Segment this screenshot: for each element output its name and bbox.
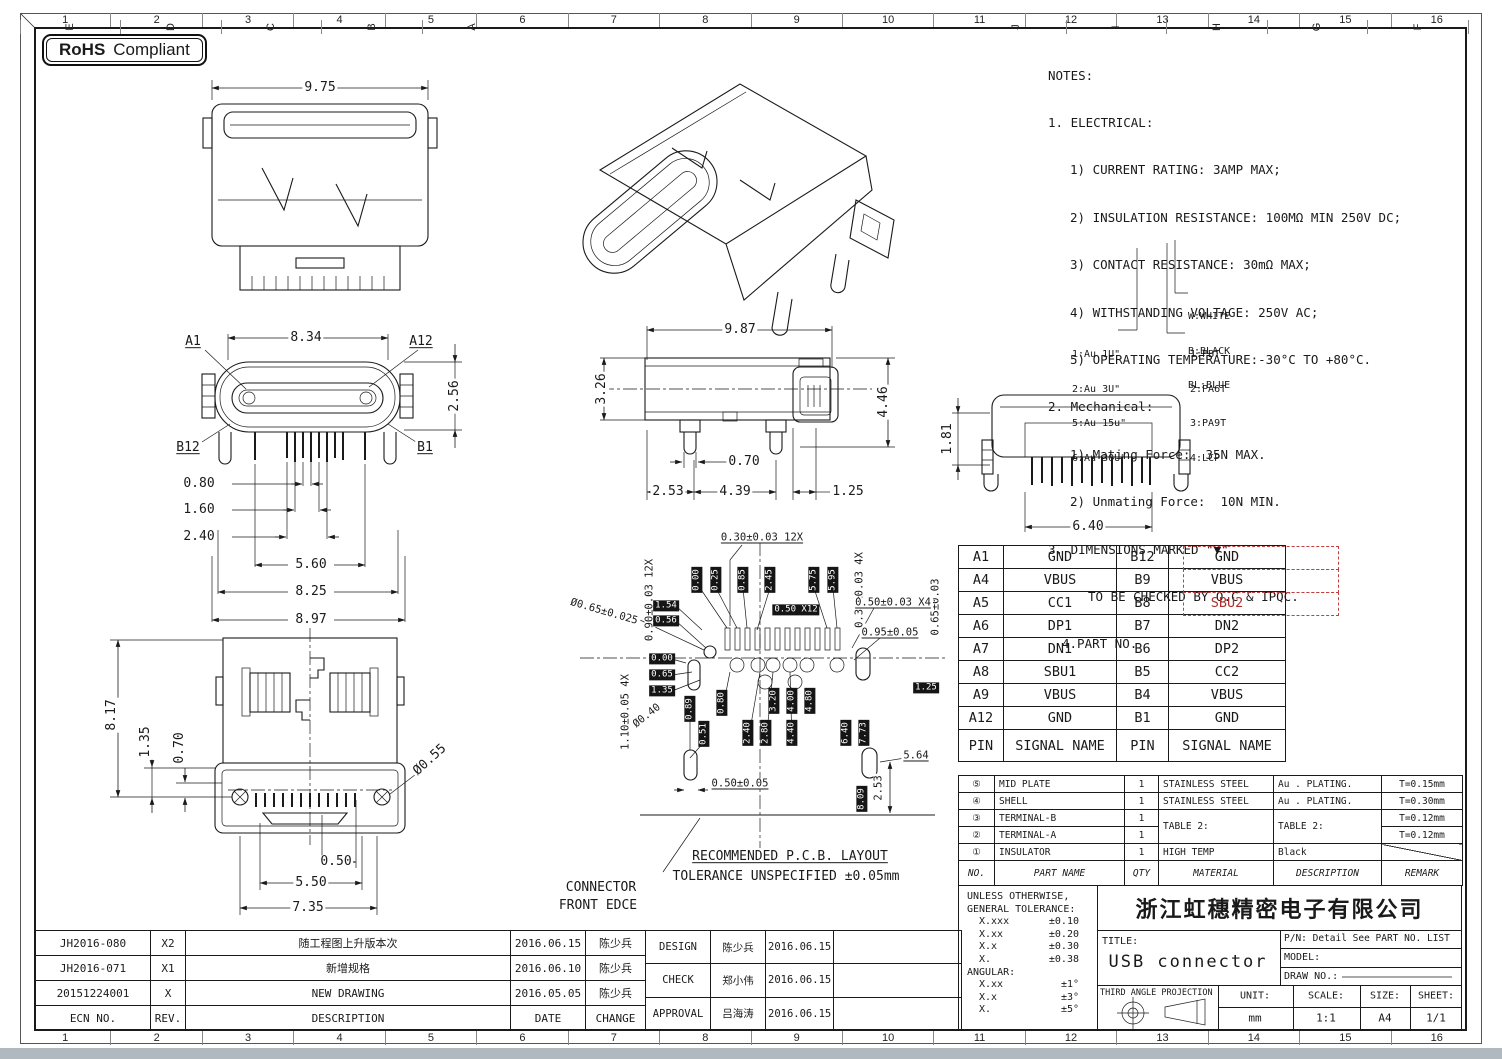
grid-col: 9 bbox=[752, 13, 843, 27]
pcb-basic-dim: 2.40 bbox=[742, 720, 753, 746]
front-view bbox=[202, 334, 462, 622]
grid-row: A bbox=[423, 20, 523, 34]
projection-label: THIRD ANGLE PROJECTION bbox=[1100, 988, 1213, 998]
signal-cell: VBUS bbox=[1004, 569, 1117, 592]
model-label: MODEL: bbox=[1284, 952, 1320, 963]
pcb-basic-dim: 4.00 bbox=[786, 688, 797, 714]
note-line: 2) Unmating Force: 10N MIN. bbox=[1070, 494, 1401, 510]
pcb-basic-dim: 5.75 bbox=[808, 567, 819, 593]
pcb-basic-dim: 0.56 bbox=[653, 615, 679, 626]
grid-row: H bbox=[1167, 20, 1268, 34]
titleblock-line bbox=[1097, 985, 1462, 986]
dim-front-p3: 2.40 bbox=[181, 530, 216, 544]
signal-cell: GND bbox=[1004, 707, 1117, 730]
dim-bottom-height: 8.17 bbox=[105, 697, 119, 732]
dim-bottom-p2: 5.50 bbox=[293, 876, 328, 890]
titleblock-line bbox=[958, 1029, 1462, 1030]
dim-front-p1: 0.80 bbox=[181, 477, 216, 491]
grid-col: 10 bbox=[843, 13, 934, 27]
pin-header: PIN bbox=[959, 730, 1004, 762]
approval-name: 郑小伟 bbox=[711, 964, 766, 997]
pin-cell: A4 bbox=[959, 569, 1004, 592]
titleblock-line bbox=[1360, 985, 1361, 1030]
pin-cell: B9 bbox=[1117, 569, 1169, 592]
part-name: MID PLATE bbox=[995, 776, 1125, 793]
pcb-basic-dim: 1.54 bbox=[653, 600, 679, 611]
titleblock-line bbox=[1293, 985, 1294, 1030]
rev-header-ecn: ECN NO. bbox=[36, 1006, 151, 1031]
signal-cell: DN1 bbox=[1004, 638, 1117, 661]
dim-bottom-d2: 0.70 bbox=[173, 730, 187, 765]
tol-code: X.x bbox=[979, 992, 997, 1005]
parts-table: ⑤MID PLATE1STAINLESS STEELAu . PLATING.T… bbox=[958, 775, 1463, 886]
rev-header-date: DATE bbox=[511, 1006, 586, 1031]
note-line: 4) WITHSTANDING VOLTAGE: 250V AC; bbox=[1070, 305, 1401, 321]
grid-row: D bbox=[121, 20, 222, 34]
part-desc: Au . PLATING. bbox=[1274, 793, 1382, 810]
part-qty: 1 bbox=[1125, 844, 1159, 861]
grid-letters-left: JIHGFEDCBA bbox=[0, 20, 522, 34]
unit-value: mm bbox=[1248, 1012, 1261, 1025]
rev-header-rev: REV. bbox=[151, 1006, 186, 1031]
scale-value: 1:1 bbox=[1316, 1012, 1336, 1025]
pcb-basic-dim: 0.51 bbox=[698, 721, 709, 747]
company-name: 浙江虹穗精密电子有限公司 bbox=[1097, 885, 1462, 930]
part-remark: T=0.15mm bbox=[1382, 776, 1463, 793]
dim-front-p4: 5.60 bbox=[293, 558, 328, 572]
tol-code: X.xx bbox=[979, 979, 1003, 992]
pcb-dim-r1: 0.50±0.03 X4 bbox=[853, 597, 933, 608]
signal-cell: DP2 bbox=[1169, 638, 1286, 661]
grid-col: 10 bbox=[843, 1031, 934, 1045]
grid-row: G bbox=[1268, 20, 1369, 34]
rev-rev: X bbox=[151, 981, 186, 1006]
approval-role: DESIGN bbox=[646, 931, 711, 964]
pin-cell: B12 bbox=[1117, 546, 1169, 569]
rev-desc: NEW DRAWING bbox=[186, 981, 511, 1006]
dim-front-p6: 8.97 bbox=[293, 613, 328, 627]
grid-col: 13 bbox=[1117, 1031, 1208, 1045]
part-name: TERMINAL-B bbox=[995, 810, 1125, 827]
grid-row: I bbox=[1067, 20, 1168, 34]
tol-val: ±5° bbox=[1061, 1004, 1079, 1017]
dim-side-h2: 4.46 bbox=[877, 384, 891, 419]
rohs-text: Compliant bbox=[113, 40, 190, 59]
pcb-basic-dim: 1.35 bbox=[649, 685, 675, 696]
pcb-basic-dim: 0.80 bbox=[716, 690, 727, 716]
part-material: HIGH TEMP bbox=[1159, 844, 1274, 861]
unit-label: UNIT: bbox=[1240, 991, 1270, 1002]
titleblock-line bbox=[1218, 985, 1219, 1030]
size-label: SIZE: bbox=[1370, 991, 1400, 1002]
grid-row: F bbox=[0, 20, 21, 34]
dim-side-d1: 0.70 bbox=[726, 455, 761, 469]
dim-side-width: 9.87 bbox=[722, 323, 757, 337]
part-material: STAINLESS STEEL bbox=[1159, 776, 1274, 793]
pcb-basic-dim: 7.73 bbox=[858, 720, 869, 746]
tolerance-line: GENERAL TOLERANCE: bbox=[967, 904, 1097, 917]
legend-line: 1:Au 1U" bbox=[1072, 349, 1126, 361]
rev-desc: 随工程图上升版本次 bbox=[186, 931, 511, 956]
dim-top-width: 9.75 bbox=[302, 81, 337, 95]
signal-cell: VBUS bbox=[1004, 684, 1117, 707]
legend-line: W:WHITE bbox=[1188, 311, 1230, 323]
size-value: A4 bbox=[1378, 1012, 1391, 1025]
grid-col: 14 bbox=[1209, 1031, 1300, 1045]
highlight-b9-vbus bbox=[1183, 569, 1339, 593]
pin-cell: B1 bbox=[1117, 707, 1169, 730]
part-name: SHELL bbox=[995, 793, 1125, 810]
part-remark: T=0.12mm bbox=[1382, 810, 1463, 827]
parts-header-material: MATERIAL bbox=[1159, 861, 1274, 886]
part-desc: Black bbox=[1274, 844, 1382, 861]
approval-date: 2016.06.15 bbox=[766, 997, 834, 1030]
parts-header-no: NO. bbox=[959, 861, 995, 886]
note-line: 1) CURRENT RATING: 3AMP MAX; bbox=[1070, 162, 1401, 178]
part-qty: 1 bbox=[1125, 793, 1159, 810]
dim-side-d2: 2.53 bbox=[650, 485, 685, 499]
pcb-basic-dim: 5.95 bbox=[827, 567, 838, 593]
signal-cell: CC1 bbox=[1004, 592, 1117, 615]
bottom-view bbox=[110, 628, 424, 915]
dim-front-p2: 1.60 bbox=[181, 503, 216, 517]
rev-change: 陈少兵 bbox=[586, 931, 646, 956]
part-qty: 1 bbox=[1125, 810, 1159, 827]
rev-date: 2016.06.15 bbox=[511, 931, 586, 956]
pcb-basic-dim: 2.80 bbox=[760, 720, 771, 746]
empty-cell bbox=[834, 964, 962, 997]
pin-cell: A5 bbox=[959, 592, 1004, 615]
rev-change: 陈少兵 bbox=[586, 956, 646, 981]
pcb-dim-top-pitch: 0.30±0.03 12X bbox=[719, 532, 805, 543]
resin-legend: 1:PBT 2:PA6T 3:PA9T 4:LCP bbox=[1190, 326, 1226, 476]
titleblock-line bbox=[1280, 948, 1462, 949]
tol-val: ±0.30 bbox=[1049, 941, 1079, 954]
highlight-b12-gnd bbox=[1183, 546, 1339, 570]
grid-letters-right: JIHGFEDCBA bbox=[966, 20, 1502, 34]
signal-cell: GND bbox=[1169, 707, 1286, 730]
part-remark: T=0.30mm bbox=[1382, 793, 1463, 810]
grid-col: 16 bbox=[1392, 1031, 1482, 1045]
pcb-front-edge-2: FRONT EDCE bbox=[557, 899, 639, 913]
grid-row: J bbox=[966, 20, 1067, 34]
tol-val: ±0.10 bbox=[1049, 916, 1079, 929]
pin-cell: B8 bbox=[1117, 592, 1169, 615]
dim-side-d4: 1.25 bbox=[830, 485, 865, 499]
rev-ecn: 20151224001 bbox=[36, 981, 151, 1006]
approval-name: 吕海涛 bbox=[711, 997, 766, 1030]
signal-cell: DN2 bbox=[1169, 615, 1286, 638]
projection-symbol bbox=[1117, 997, 1205, 1029]
part-no: ③ bbox=[959, 810, 995, 827]
sheet-value: 1/1 bbox=[1426, 1012, 1446, 1025]
grid-col: 8 bbox=[660, 13, 751, 27]
part-no: ④ bbox=[959, 793, 995, 810]
title-label: TITLE: bbox=[1102, 936, 1138, 947]
part-desc: TABLE 2: bbox=[1274, 810, 1382, 844]
signal-cell: DP1 bbox=[1004, 615, 1117, 638]
pcb-basic-dim: 6.40 bbox=[840, 720, 851, 746]
drawing-title: USB connector bbox=[1108, 952, 1267, 972]
signal-cell: SBU1 bbox=[1004, 661, 1117, 684]
pin-cell: B6 bbox=[1117, 638, 1169, 661]
grid-row: F bbox=[1368, 20, 1469, 34]
titleblock-line bbox=[1280, 967, 1462, 968]
rohs-bold: RoHS bbox=[59, 40, 105, 59]
draw-no-label: DRAW NO.: bbox=[1284, 971, 1338, 982]
dim-rear-width: 6.40 bbox=[1070, 520, 1105, 534]
pcb-basic-dim: 0.50 X12 bbox=[772, 604, 819, 615]
grid-col: 8 bbox=[660, 1031, 751, 1045]
note-line: NOTES: bbox=[1048, 68, 1401, 84]
grid-col: 11 bbox=[934, 1031, 1025, 1045]
dim-bottom-d1: 1.35 bbox=[139, 724, 153, 759]
grid-col: 1 bbox=[20, 1031, 111, 1045]
legend-line: 4:LCP bbox=[1190, 453, 1226, 465]
pcb-basic-dim: 0.65 bbox=[649, 669, 675, 680]
pin-cell: B5 bbox=[1117, 661, 1169, 684]
titleblock-line bbox=[1280, 930, 1281, 985]
tol-code: X. bbox=[979, 1004, 991, 1017]
approval-date: 2016.06.15 bbox=[766, 931, 834, 964]
pin-cell: B7 bbox=[1117, 615, 1169, 638]
tol-code: X.xxx bbox=[979, 916, 1009, 929]
signal-header: SIGNAL NAME bbox=[1169, 730, 1286, 762]
tolerance-angular-label: ANGULAR: bbox=[967, 967, 1097, 980]
grid-col: 2 bbox=[111, 1031, 202, 1045]
grid-numbers-bottom: 12345678910111213141516 bbox=[20, 1031, 1482, 1045]
part-qty: 1 bbox=[1125, 776, 1159, 793]
tolerance-line: UNLESS OTHERWISE, bbox=[967, 891, 1097, 904]
grid-col: 4 bbox=[294, 1031, 385, 1045]
pcb-basic-dim: 0.89 bbox=[684, 696, 695, 722]
grid-row: E bbox=[21, 20, 122, 34]
grid-col: 6 bbox=[477, 1031, 568, 1045]
legend-line: 2:Au 3U" bbox=[1072, 384, 1126, 396]
pin-cell: A8 bbox=[959, 661, 1004, 684]
tol-val: ±0.20 bbox=[1049, 929, 1079, 942]
legend-line: 1:PBT bbox=[1190, 349, 1226, 361]
signal-cell: GND bbox=[1004, 546, 1117, 569]
plating-legend: 1:Au 1U" 2:Au 3U" 5:Au 15u" 6:Au 30U" bbox=[1072, 326, 1126, 476]
revision-table: JH2016-080X2随工程图上升版本次2016.06.15陈少兵 JH201… bbox=[35, 930, 646, 1031]
tol-code: X.x bbox=[979, 941, 997, 954]
pcb-dim-b3: 2.53 bbox=[873, 773, 884, 802]
dim-front-height: 2.56 bbox=[448, 378, 462, 413]
grid-col: 15 bbox=[1300, 1031, 1391, 1045]
pcb-note-1: RECOMMENDED P.C.B. LAYOUT bbox=[690, 850, 890, 864]
rev-rev: X2 bbox=[151, 931, 186, 956]
titleblock-line bbox=[1410, 985, 1411, 1030]
approval-table: DESIGN陈少兵2016.06.15 CHECK郑小伟2016.06.15 A… bbox=[645, 930, 962, 1031]
tol-val: ±0.38 bbox=[1049, 954, 1079, 967]
legend-line: 3:PA9T bbox=[1190, 418, 1226, 430]
isometric-view bbox=[570, 84, 894, 335]
pin-label-a12: A12 bbox=[407, 335, 434, 349]
legend-line: 2:PA6T bbox=[1190, 384, 1226, 396]
rev-date: 2016.05.05 bbox=[511, 981, 586, 1006]
part-desc: Au . PLATING. bbox=[1274, 776, 1382, 793]
grid-col: 5 bbox=[386, 1031, 477, 1045]
pcb-basic-dim: 4.40 bbox=[786, 720, 797, 746]
pcb-basic-dim: 0.00 bbox=[691, 567, 702, 593]
rohs-badge: RoHSCompliant bbox=[42, 34, 207, 66]
pin-label-b12: B12 bbox=[174, 441, 201, 455]
side-view bbox=[600, 326, 895, 500]
approval-role: APPROVAL bbox=[646, 997, 711, 1030]
note-line: 3) CONTACT RESISTANCE: 30mΩ MAX; bbox=[1070, 257, 1401, 273]
pin-cell: A6 bbox=[959, 615, 1004, 638]
pcb-dim-b1: 0.50±0.05 bbox=[710, 778, 771, 789]
parts-header-remark: REMARK bbox=[1382, 861, 1463, 886]
tol-val: ±3° bbox=[1061, 992, 1079, 1005]
grid-col: 9 bbox=[752, 1031, 843, 1045]
part-material: STAINLESS STEEL bbox=[1159, 793, 1274, 810]
pin-cell: A1 bbox=[959, 546, 1004, 569]
approval-name: 陈少兵 bbox=[711, 931, 766, 964]
pcb-basic-dim: 0.25 bbox=[710, 567, 721, 593]
grid-row: C bbox=[222, 20, 323, 34]
tol-code: X. bbox=[979, 954, 991, 967]
rev-ecn: JH2016-080 bbox=[36, 931, 151, 956]
part-material: TABLE 2: bbox=[1159, 810, 1274, 844]
dim-front-p5: 8.25 bbox=[293, 585, 328, 599]
approval-role: CHECK bbox=[646, 964, 711, 997]
dim-bottom-p3: 7.35 bbox=[290, 901, 325, 915]
pin-label-a1: A1 bbox=[183, 335, 203, 349]
rev-ecn: JH2016-071 bbox=[36, 956, 151, 981]
dim-side-d3: 4.39 bbox=[717, 485, 752, 499]
pcb-basic-dim: 8.09 bbox=[856, 786, 867, 812]
highlight-b8-sbu2 bbox=[1183, 592, 1339, 616]
part-remark bbox=[1382, 844, 1463, 861]
dim-front-width: 8.34 bbox=[288, 331, 323, 345]
pin-cell: B4 bbox=[1117, 684, 1169, 707]
pcb-dim-r2: 0.95±0.05 bbox=[860, 627, 921, 638]
signal-cell: VBUS bbox=[1169, 684, 1286, 707]
scale-label: SCALE: bbox=[1308, 991, 1344, 1002]
rev-header-change: CHANGE bbox=[586, 1006, 646, 1031]
signal-header: SIGNAL NAME bbox=[1004, 730, 1117, 762]
empty-cell bbox=[834, 931, 962, 964]
titleblock-line bbox=[1218, 1007, 1462, 1008]
pcb-basic-dim: 0.00 bbox=[649, 653, 675, 664]
pin-cell: A7 bbox=[959, 638, 1004, 661]
part-name: INSULATOR bbox=[995, 844, 1125, 861]
top-view bbox=[203, 80, 437, 290]
note-line: 1. ELECTRICAL: bbox=[1048, 115, 1401, 131]
grid-row: B bbox=[322, 20, 423, 34]
window-bottom-strip bbox=[0, 1048, 1502, 1059]
dim-side-h1: 3.26 bbox=[595, 371, 609, 406]
part-no: ⑤ bbox=[959, 776, 995, 793]
note-line: 2) INSULATION RESISTANCE: 100MΩ MIN 250V… bbox=[1070, 210, 1401, 226]
grid-col: 12 bbox=[1026, 1031, 1117, 1045]
rev-header-desc: DESCRIPTION bbox=[186, 1006, 511, 1031]
approval-date: 2016.06.15 bbox=[766, 964, 834, 997]
parts-header-desc: DESCRIPTION bbox=[1274, 861, 1382, 886]
signal-cell: CC2 bbox=[1169, 661, 1286, 684]
pcb-basic-dim: 1.25 bbox=[913, 682, 939, 693]
pin-cell: A9 bbox=[959, 684, 1004, 707]
grid-col: 7 bbox=[569, 1031, 660, 1045]
pcb-dim-right: 0.30±0.03 4X bbox=[854, 550, 865, 630]
pcb-front-edge-1: CONNECTOR bbox=[564, 881, 638, 895]
empty-cell bbox=[834, 997, 962, 1030]
tol-val: ±1° bbox=[1061, 979, 1079, 992]
grid-col: 7 bbox=[569, 13, 660, 27]
pcb-dim-v2: 1.10±0.05 4X bbox=[620, 672, 631, 752]
part-name: TERMINAL-A bbox=[995, 827, 1125, 844]
part-no: ① bbox=[959, 844, 995, 861]
pcb-basic-dim: 0.85 bbox=[737, 567, 748, 593]
pcb-note-2: TOLERANCE UNSPECIFIED ±0.05mm bbox=[671, 870, 902, 884]
rev-change: 陈少兵 bbox=[586, 981, 646, 1006]
pcb-basic-dim: 2.45 bbox=[764, 567, 775, 593]
rev-desc: 新增规格 bbox=[186, 956, 511, 981]
sheet-label: SHEET: bbox=[1418, 991, 1454, 1002]
legend-line: 5:Au 15u" bbox=[1072, 418, 1126, 430]
parts-header-qty: QTY bbox=[1125, 861, 1159, 886]
pin-cell: A12 bbox=[959, 707, 1004, 730]
tol-code: X.xx bbox=[979, 929, 1003, 942]
rev-rev: X1 bbox=[151, 956, 186, 981]
pcb-basic-dim: 4.80 bbox=[804, 688, 815, 714]
dim-bottom-p1: 0.50 bbox=[318, 855, 353, 869]
pin-label-b1: B1 bbox=[415, 441, 435, 455]
grid-col: 3 bbox=[203, 1031, 294, 1045]
part-remark: T=0.12mm bbox=[1382, 827, 1463, 844]
parts-header-name: PART NAME bbox=[995, 861, 1125, 886]
rev-date: 2016.06.10 bbox=[511, 956, 586, 981]
pcb-dim-b2: 5.64 bbox=[901, 750, 930, 761]
grid-row: E bbox=[1469, 20, 1502, 34]
dim-rear-height: 1.81 bbox=[941, 421, 955, 456]
pcb-basic-dim: 3.20 bbox=[768, 688, 779, 714]
legend-line: 6:Au 30U" bbox=[1072, 453, 1126, 465]
part-no: ② bbox=[959, 827, 995, 844]
tolerance-block: UNLESS OTHERWISE, GENERAL TOLERANCE: X.x… bbox=[958, 885, 1097, 1030]
part-number-note: P/N: Detail See PART NO. LIST bbox=[1284, 933, 1450, 944]
part-qty: 1 bbox=[1125, 827, 1159, 844]
pin-header: PIN bbox=[1117, 730, 1169, 762]
